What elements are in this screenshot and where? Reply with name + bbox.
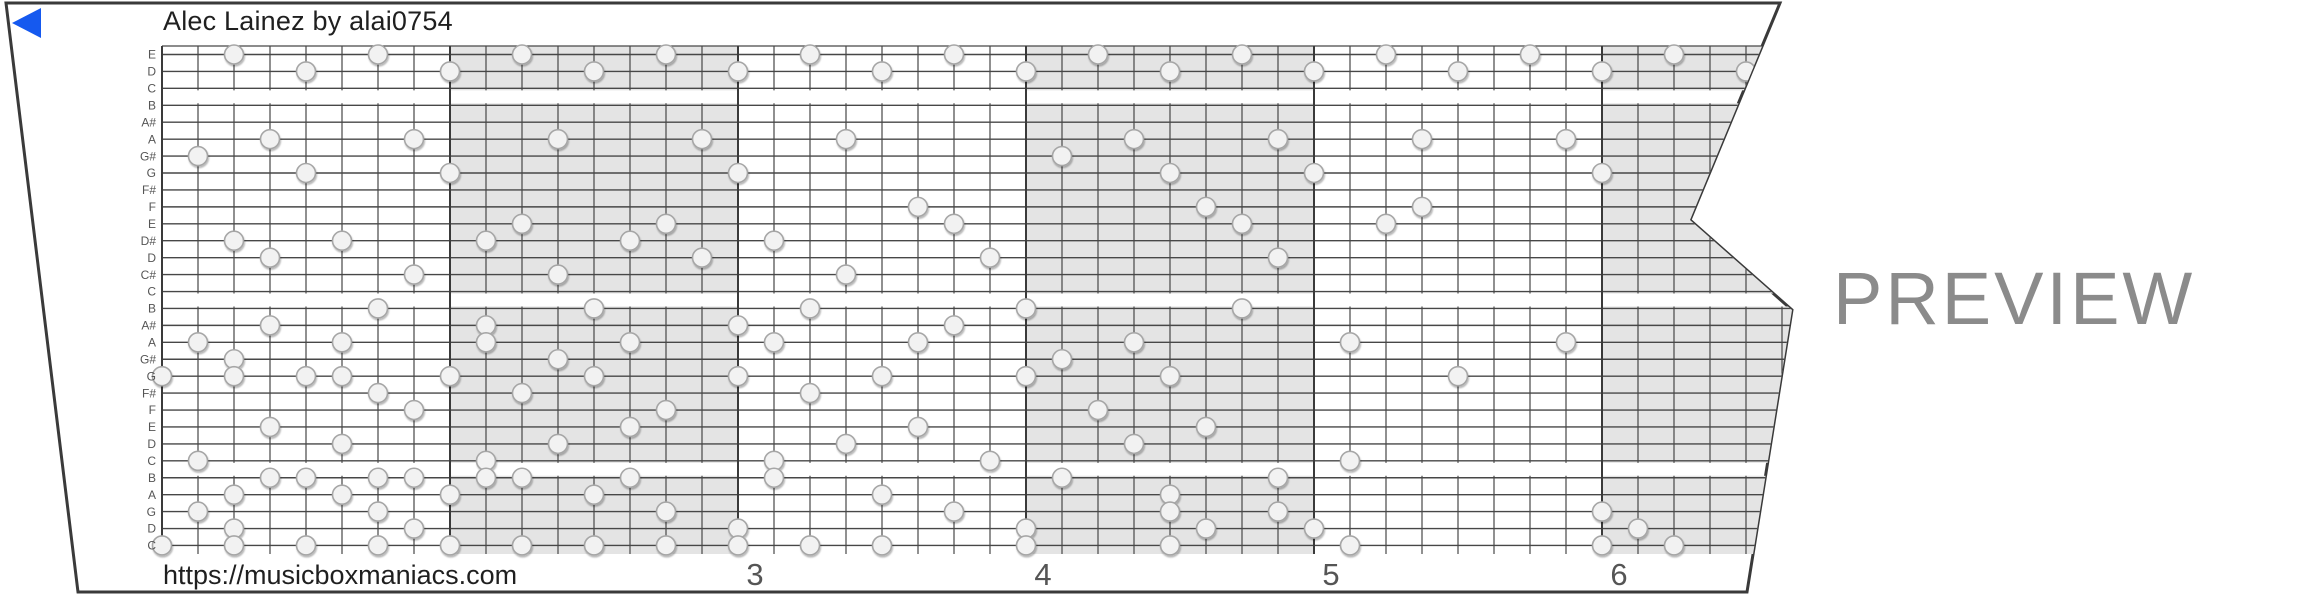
note-dot bbox=[945, 502, 964, 521]
note-dot bbox=[1341, 451, 1360, 470]
note-dot bbox=[477, 333, 496, 352]
note-dot bbox=[1017, 62, 1036, 81]
note-dot bbox=[801, 299, 820, 318]
note-label: C bbox=[147, 539, 156, 553]
note-dot bbox=[369, 299, 388, 318]
note-dot bbox=[333, 333, 352, 352]
note-dot bbox=[549, 265, 568, 284]
note-dot bbox=[657, 502, 676, 521]
note-label: E bbox=[148, 420, 156, 434]
note-dot bbox=[1233, 214, 1252, 233]
note-dot bbox=[369, 468, 388, 487]
measure-number: 3 bbox=[746, 557, 763, 592]
strip-outline bbox=[6, 3, 1792, 592]
note-label: G bbox=[147, 369, 156, 383]
site-url: https://musicboxmaniacs.com bbox=[163, 560, 517, 591]
note-dot bbox=[585, 536, 604, 555]
note-dot bbox=[369, 45, 388, 64]
note-dot bbox=[729, 316, 748, 335]
note-dot bbox=[1233, 299, 1252, 318]
note-dot bbox=[333, 367, 352, 386]
note-dot bbox=[1161, 164, 1180, 183]
note-dot bbox=[729, 367, 748, 386]
note-dot bbox=[1197, 519, 1216, 538]
note-label: D bbox=[147, 65, 156, 79]
note-dot bbox=[1233, 45, 1252, 64]
note-dot bbox=[225, 45, 244, 64]
note-dot bbox=[1089, 401, 1108, 420]
note-dot bbox=[1305, 519, 1324, 538]
note-dot bbox=[945, 45, 964, 64]
note-dot bbox=[1305, 62, 1324, 81]
note-dot bbox=[1413, 197, 1432, 216]
note-label: C bbox=[147, 82, 156, 96]
note-dot bbox=[1089, 45, 1108, 64]
note-dot bbox=[1197, 417, 1216, 436]
note-dot bbox=[1017, 536, 1036, 555]
note-label: F# bbox=[142, 386, 156, 400]
note-dot bbox=[1161, 536, 1180, 555]
note-label: D# bbox=[141, 234, 157, 248]
note-dot bbox=[1161, 367, 1180, 386]
note-dot bbox=[189, 333, 208, 352]
note-dot bbox=[1341, 333, 1360, 352]
note-dot bbox=[981, 248, 1000, 267]
note-dot bbox=[1053, 350, 1072, 369]
note-dot bbox=[585, 485, 604, 504]
note-dot bbox=[225, 367, 244, 386]
note-dot bbox=[297, 536, 316, 555]
note-dot bbox=[873, 536, 892, 555]
note-dot bbox=[405, 519, 424, 538]
note-label: G# bbox=[140, 149, 156, 163]
note-dot bbox=[405, 265, 424, 284]
note-dot bbox=[1593, 502, 1612, 521]
note-dot bbox=[621, 333, 640, 352]
note-dot bbox=[261, 316, 280, 335]
note-dot bbox=[657, 45, 676, 64]
note-dot bbox=[1377, 45, 1396, 64]
note-label: C bbox=[147, 285, 156, 299]
measure-number: 4 bbox=[1034, 557, 1051, 592]
note-dot bbox=[657, 214, 676, 233]
note-dot bbox=[1629, 519, 1648, 538]
note-dot bbox=[297, 62, 316, 81]
note-dot bbox=[1269, 248, 1288, 267]
note-label: G bbox=[147, 166, 156, 180]
note-dot bbox=[873, 485, 892, 504]
note-dot bbox=[513, 384, 532, 403]
note-dot bbox=[513, 536, 532, 555]
note-dot bbox=[369, 502, 388, 521]
note-dot bbox=[1593, 536, 1612, 555]
note-label: A bbox=[148, 132, 156, 146]
note-dot bbox=[1269, 130, 1288, 149]
note-dot bbox=[513, 45, 532, 64]
note-dot bbox=[801, 536, 820, 555]
preview-watermark: PREVIEW bbox=[1833, 256, 2195, 341]
note-dot bbox=[405, 468, 424, 487]
note-dot bbox=[513, 214, 532, 233]
melody-title: Alec Lainez by alai0754 bbox=[163, 6, 453, 37]
note-label: B bbox=[148, 98, 156, 112]
note-dot bbox=[657, 536, 676, 555]
note-dot bbox=[405, 130, 424, 149]
note-dot bbox=[621, 231, 640, 250]
note-dot bbox=[1053, 468, 1072, 487]
note-dot bbox=[1161, 502, 1180, 521]
note-dot bbox=[909, 417, 928, 436]
note-dot bbox=[333, 485, 352, 504]
note-dot bbox=[1593, 62, 1612, 81]
note-dot bbox=[1125, 333, 1144, 352]
note-label: D bbox=[147, 251, 156, 265]
note-dot bbox=[873, 62, 892, 81]
note-dot bbox=[441, 62, 460, 81]
note-dot bbox=[729, 536, 748, 555]
note-dot bbox=[189, 147, 208, 166]
note-dot bbox=[585, 62, 604, 81]
note-dot bbox=[261, 417, 280, 436]
note-dot bbox=[1125, 434, 1144, 453]
note-dot bbox=[549, 130, 568, 149]
note-dot bbox=[189, 451, 208, 470]
note-dot bbox=[513, 468, 532, 487]
note-label: G# bbox=[140, 352, 156, 366]
note-dot bbox=[1017, 299, 1036, 318]
note-label: D bbox=[147, 437, 156, 451]
note-dot bbox=[441, 536, 460, 555]
note-dot bbox=[1269, 468, 1288, 487]
note-dot bbox=[729, 164, 748, 183]
note-dot bbox=[1053, 147, 1072, 166]
note-dot bbox=[1341, 536, 1360, 555]
note-dot bbox=[333, 231, 352, 250]
note-dot bbox=[729, 62, 748, 81]
note-dot bbox=[1017, 367, 1036, 386]
note-dot bbox=[1521, 45, 1540, 64]
note-dot bbox=[621, 468, 640, 487]
note-dot bbox=[1125, 130, 1144, 149]
note-dot bbox=[945, 214, 964, 233]
note-dot bbox=[801, 45, 820, 64]
note-dot bbox=[657, 401, 676, 420]
note-dot bbox=[945, 316, 964, 335]
note-dot bbox=[333, 434, 352, 453]
note-dot bbox=[297, 468, 316, 487]
note-dot bbox=[1557, 130, 1576, 149]
note-dot bbox=[1593, 164, 1612, 183]
note-dot bbox=[909, 333, 928, 352]
note-dot bbox=[1161, 62, 1180, 81]
note-dot bbox=[693, 248, 712, 267]
note-dot bbox=[765, 231, 784, 250]
note-dot bbox=[261, 130, 280, 149]
note-label: D bbox=[147, 522, 156, 536]
note-dot bbox=[585, 367, 604, 386]
note-dot bbox=[441, 164, 460, 183]
note-dot bbox=[1665, 45, 1684, 64]
note-dot bbox=[837, 130, 856, 149]
music-box-strip-preview[interactable]: EDCBA#AG#GF#FED#DC#CBA#AG#GF#FEDCBAGDC34… bbox=[0, 0, 2310, 597]
measure-number: 6 bbox=[1610, 557, 1627, 592]
note-dot bbox=[837, 434, 856, 453]
note-dot bbox=[297, 164, 316, 183]
note-dot bbox=[909, 197, 928, 216]
note-dot bbox=[1557, 333, 1576, 352]
measure-number: 5 bbox=[1322, 557, 1339, 592]
note-dot bbox=[801, 384, 820, 403]
note-label: A# bbox=[141, 319, 156, 333]
note-label: A# bbox=[141, 115, 156, 129]
note-dot bbox=[765, 468, 784, 487]
note-label: A bbox=[148, 488, 156, 502]
note-dot bbox=[621, 417, 640, 436]
note-dot bbox=[1449, 62, 1468, 81]
note-dot bbox=[1269, 502, 1288, 521]
note-label: A bbox=[148, 336, 156, 350]
note-dot bbox=[981, 451, 1000, 470]
note-dot bbox=[1665, 536, 1684, 555]
note-dot bbox=[1197, 197, 1216, 216]
note-dot bbox=[1449, 367, 1468, 386]
note-label: E bbox=[148, 217, 156, 231]
note-label: C bbox=[147, 454, 156, 468]
note-dot bbox=[837, 265, 856, 284]
note-dot bbox=[405, 401, 424, 420]
note-dot bbox=[441, 367, 460, 386]
note-dot bbox=[477, 231, 496, 250]
note-dot bbox=[873, 367, 892, 386]
note-dot bbox=[189, 502, 208, 521]
note-dot bbox=[1377, 214, 1396, 233]
note-label: B bbox=[148, 302, 156, 316]
note-dot bbox=[1305, 164, 1324, 183]
note-dot bbox=[693, 130, 712, 149]
note-dot bbox=[261, 248, 280, 267]
note-dot bbox=[261, 468, 280, 487]
note-dot bbox=[225, 485, 244, 504]
note-dot bbox=[477, 468, 496, 487]
note-label: F bbox=[149, 200, 156, 214]
note-dot bbox=[1413, 130, 1432, 149]
note-label: F bbox=[149, 403, 156, 417]
note-label: B bbox=[148, 471, 156, 485]
note-dot bbox=[549, 434, 568, 453]
note-label: F# bbox=[142, 183, 156, 197]
note-dot bbox=[225, 231, 244, 250]
note-dot bbox=[441, 485, 460, 504]
note-dot bbox=[369, 536, 388, 555]
note-label: E bbox=[148, 48, 156, 62]
note-dot bbox=[225, 536, 244, 555]
note-dot bbox=[369, 384, 388, 403]
note-label: C# bbox=[141, 268, 157, 282]
note-dot bbox=[549, 350, 568, 369]
note-dot bbox=[297, 367, 316, 386]
note-label: G bbox=[147, 505, 156, 519]
note-dot bbox=[765, 333, 784, 352]
note-dot bbox=[585, 299, 604, 318]
